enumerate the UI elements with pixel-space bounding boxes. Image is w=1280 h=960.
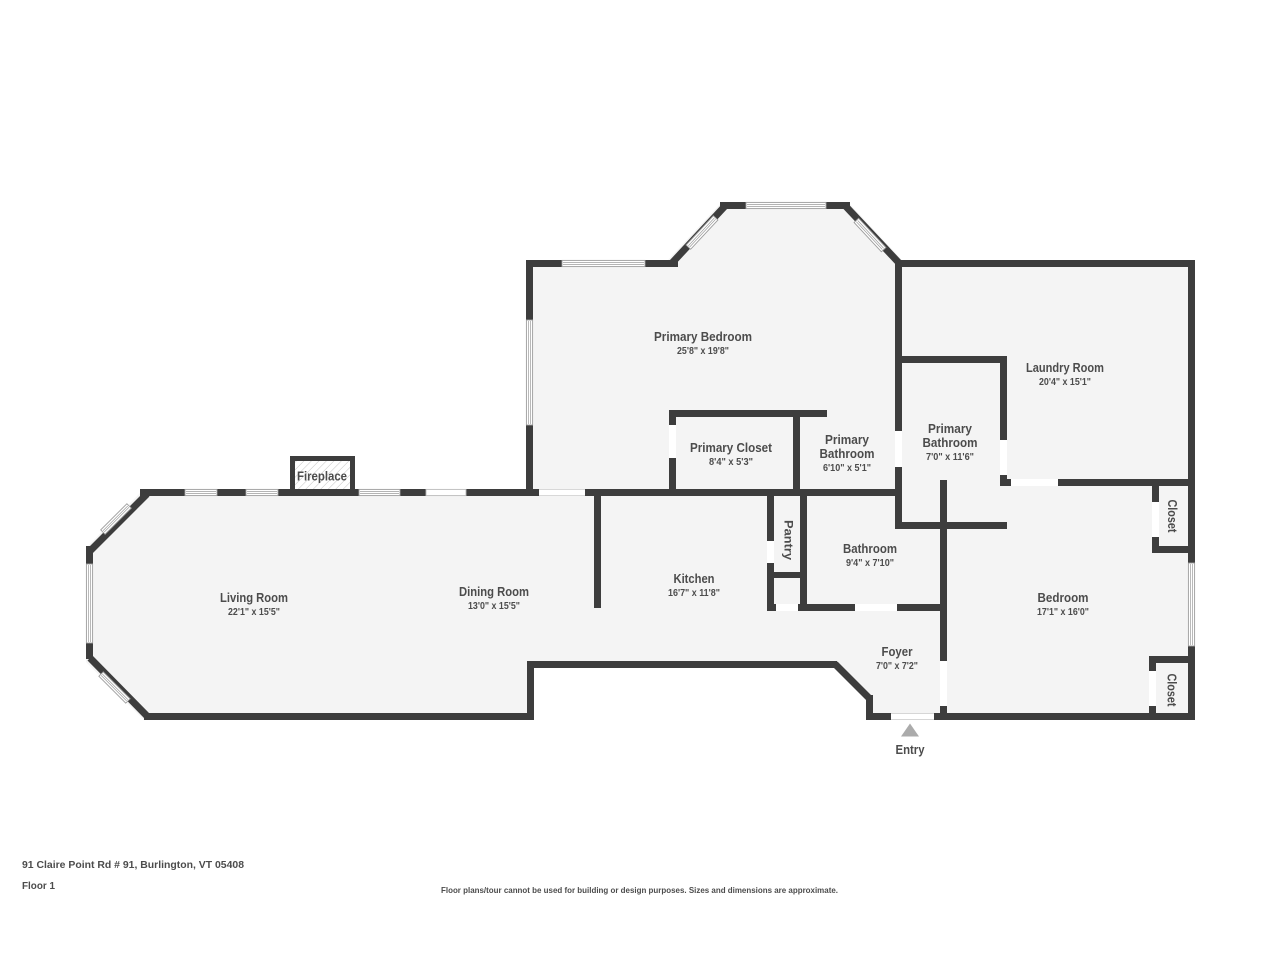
svg-text:Bedroom: Bedroom: [1038, 590, 1089, 605]
svg-text:Dining Room: Dining Room: [459, 584, 529, 599]
svg-text:Fireplace: Fireplace: [297, 469, 347, 484]
svg-text:Floor plans/tour cannot be use: Floor plans/tour cannot be used for buil…: [441, 885, 838, 895]
svg-text:7'0" x 11'6": 7'0" x 11'6": [926, 452, 974, 463]
svg-text:Living Room: Living Room: [220, 590, 288, 605]
svg-text:Pantry: Pantry: [782, 520, 796, 560]
svg-text:Closet: Closet: [1165, 500, 1179, 534]
svg-text:Bathroom: Bathroom: [843, 541, 897, 556]
svg-text:9'4" x 7'10": 9'4" x 7'10": [846, 558, 894, 569]
svg-text:Kitchen: Kitchen: [674, 571, 715, 586]
svg-text:17'1" x 16'0": 17'1" x 16'0": [1037, 607, 1089, 618]
svg-text:Floor 1: Floor 1: [22, 880, 55, 892]
svg-text:7'0" x 7'2": 7'0" x 7'2": [876, 661, 918, 672]
svg-text:20'4" x 15'1": 20'4" x 15'1": [1039, 377, 1091, 388]
svg-text:Primary Closet: Primary Closet: [690, 440, 773, 455]
svg-text:22'1" x 15'5": 22'1" x 15'5": [228, 607, 280, 618]
svg-text:13'0" x 15'5": 13'0" x 15'5": [468, 601, 520, 612]
svg-text:Bathroom: Bathroom: [923, 435, 978, 450]
svg-text:Foyer: Foyer: [882, 644, 913, 659]
svg-text:25'8" x 19'8": 25'8" x 19'8": [677, 346, 729, 357]
svg-text:6'10" x 5'1": 6'10" x 5'1": [823, 463, 871, 474]
svg-text:Bathroom: Bathroom: [820, 446, 875, 461]
svg-text:Primary: Primary: [928, 421, 973, 436]
svg-text:Closet: Closet: [1165, 674, 1179, 708]
svg-text:16'7" x 11'8": 16'7" x 11'8": [668, 588, 720, 599]
svg-text:91 Claire Point Rd # 91, Burli: 91 Claire Point Rd # 91, Burlington, VT …: [22, 859, 244, 871]
svg-text:Primary: Primary: [825, 432, 870, 447]
svg-text:Primary Bedroom: Primary Bedroom: [654, 329, 752, 344]
svg-text:Laundry Room: Laundry Room: [1026, 360, 1104, 375]
svg-text:8'4" x 5'3": 8'4" x 5'3": [709, 457, 753, 468]
svg-text:Entry: Entry: [896, 743, 925, 757]
